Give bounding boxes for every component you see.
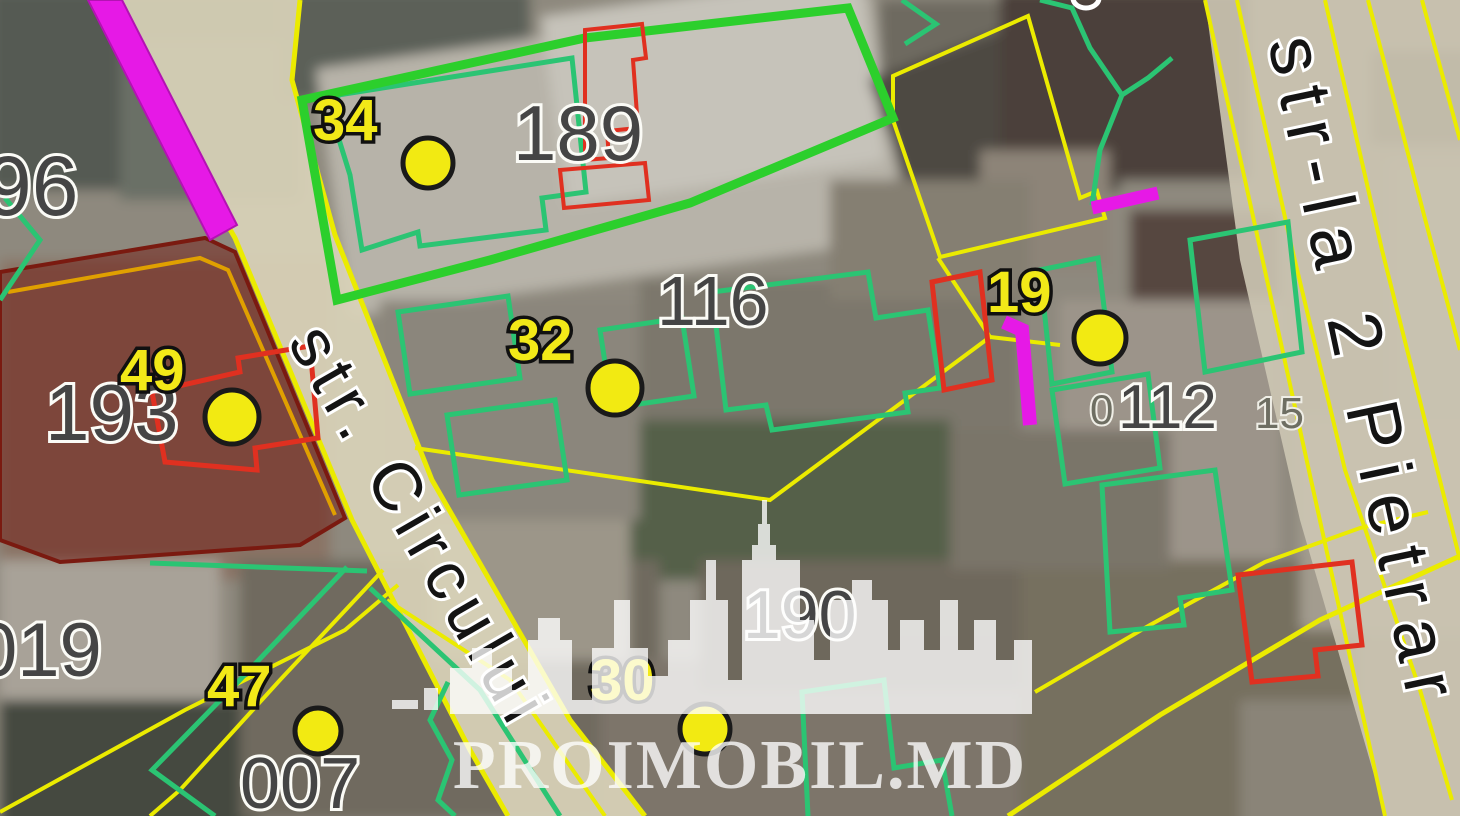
marker-dot-icon[interactable] [295,708,341,754]
parcel-label-0: 0 [1090,386,1113,433]
marker-label: 34 [313,88,378,153]
cadastral-map: 96 189 116 193 019 007 190 0 112 15 str.… [0,0,1460,816]
marker-label: 47 [207,654,272,719]
watermark-brand-text: PROIMOBIL.MD [453,727,1027,804]
marker-label: 49 [120,338,185,403]
marker-dot-icon[interactable] [205,390,259,444]
parcel-label-15: 15 [1255,389,1304,438]
parcel-label-112: 112 [1118,373,1217,442]
marker-label: 32 [508,308,573,373]
marker-dot-icon[interactable] [403,138,453,188]
parcel-label-189: 189 [513,89,643,177]
parcel-label-007: 007 [240,744,360,816]
cadastral-map-viewport[interactable]: 96 189 116 193 019 007 190 0 112 15 str.… [0,0,1460,816]
marker-dot-icon[interactable] [588,361,642,415]
marker-label: 19 [987,260,1052,325]
parcel-label-116: 116 [657,262,769,340]
parcel-label-019: 019 [0,608,102,693]
marker-dot-icon[interactable] [1074,312,1126,364]
parcel-label-96: 96 [0,139,78,233]
